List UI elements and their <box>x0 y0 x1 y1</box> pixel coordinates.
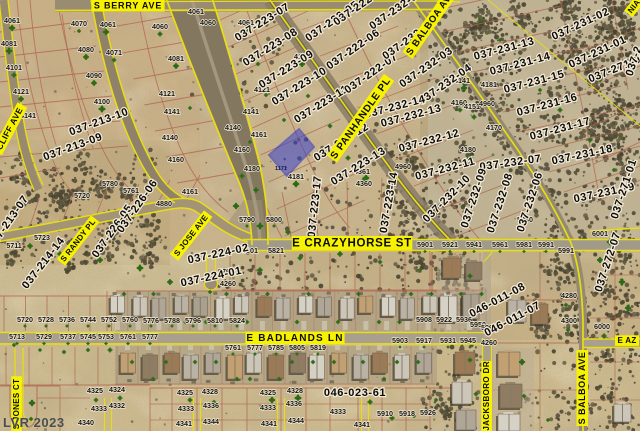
svg-text:4332: 4332 <box>109 401 125 410</box>
svg-text:S JACKSBORO DR: S JACKSBORO DR <box>482 361 491 431</box>
svg-text:5991: 5991 <box>558 246 574 255</box>
svg-text:4061: 4061 <box>188 7 204 16</box>
svg-text:4360: 4360 <box>356 179 372 188</box>
svg-text:5800: 5800 <box>266 215 282 224</box>
svg-text:5810: 5810 <box>207 316 223 325</box>
svg-text:4141: 4141 <box>164 107 180 116</box>
svg-text:5752: 5752 <box>101 315 117 324</box>
svg-text:S BALBOA AVE: S BALBOA AVE <box>577 352 587 425</box>
svg-text:4121: 4121 <box>13 87 29 96</box>
svg-text:4328: 4328 <box>202 387 218 396</box>
svg-text:5991: 5991 <box>538 240 554 249</box>
svg-text:4121: 4121 <box>159 89 175 98</box>
svg-text:5903: 5903 <box>392 336 408 345</box>
svg-text:5821: 5821 <box>268 246 284 255</box>
svg-text:4280: 4280 <box>561 291 577 300</box>
svg-text:5776: 5776 <box>143 316 159 325</box>
svg-text:4160: 4160 <box>234 145 250 154</box>
svg-text:4333: 4333 <box>178 404 194 413</box>
svg-text:5931: 5931 <box>440 336 456 345</box>
svg-text:5901: 5901 <box>417 240 433 249</box>
svg-text:5941: 5941 <box>466 240 482 249</box>
svg-text:4160: 4160 <box>168 155 184 164</box>
svg-text:4140: 4140 <box>225 123 241 132</box>
svg-text:4333: 4333 <box>330 407 346 416</box>
svg-text:4333: 4333 <box>91 404 107 413</box>
svg-text:4960: 4960 <box>395 162 411 171</box>
svg-text:4180: 4180 <box>244 164 260 173</box>
svg-text:1171: 1171 <box>275 166 287 172</box>
svg-text:4333: 4333 <box>260 403 276 412</box>
svg-text:4341: 4341 <box>261 419 277 428</box>
svg-text:4090: 4090 <box>86 71 102 80</box>
svg-text:4070: 4070 <box>71 19 87 28</box>
svg-text:4328: 4328 <box>287 386 303 395</box>
svg-text:5918: 5918 <box>399 409 415 418</box>
svg-text:LVR 2023: LVR 2023 <box>3 415 65 430</box>
svg-text:5796: 5796 <box>185 316 201 325</box>
svg-text:5805: 5805 <box>289 343 305 352</box>
svg-text:4336: 4336 <box>286 399 302 408</box>
svg-text:5910: 5910 <box>377 409 393 418</box>
svg-text:4081: 4081 <box>1 39 17 48</box>
svg-text:5720: 5720 <box>74 191 90 200</box>
svg-text:4341: 4341 <box>176 419 192 428</box>
svg-text:4260: 4260 <box>481 338 497 347</box>
svg-text:4325: 4325 <box>260 388 276 397</box>
svg-text:5945: 5945 <box>460 336 476 345</box>
svg-text:4300: 4300 <box>561 316 577 325</box>
svg-text:5926: 5926 <box>420 408 436 417</box>
svg-text:5788: 5788 <box>164 316 180 325</box>
svg-text:4344: 4344 <box>203 417 219 426</box>
svg-text:5761: 5761 <box>225 343 241 352</box>
svg-text:4081: 4081 <box>168 54 184 63</box>
svg-text:5824: 5824 <box>229 316 245 325</box>
svg-text:4151: 4151 <box>464 102 480 111</box>
svg-text:5745: 5745 <box>80 332 96 341</box>
svg-text:4180: 4180 <box>460 145 476 154</box>
svg-text:5728: 5728 <box>38 315 54 324</box>
svg-text:4061: 4061 <box>4 16 20 25</box>
svg-text:4324: 4324 <box>109 385 125 394</box>
svg-text:4100: 4100 <box>94 97 110 106</box>
svg-text:5777: 5777 <box>142 332 158 341</box>
svg-text:4060: 4060 <box>200 18 216 27</box>
svg-text:4344: 4344 <box>288 416 304 425</box>
svg-text:4341: 4341 <box>354 420 370 429</box>
svg-text:5761: 5761 <box>120 332 136 341</box>
svg-text:5961: 5961 <box>492 240 508 249</box>
svg-text:4101: 4101 <box>6 63 22 72</box>
svg-text:5760: 5760 <box>122 315 138 324</box>
svg-text:6000: 6000 <box>594 322 610 331</box>
svg-text:5922: 5922 <box>436 315 452 324</box>
svg-text:5981: 5981 <box>516 240 532 249</box>
svg-text:5819: 5819 <box>310 343 326 352</box>
svg-text:E BADLANDS LN: E BADLANDS LN <box>246 333 343 344</box>
svg-text:4061: 4061 <box>100 20 116 29</box>
svg-text:5777: 5777 <box>247 343 263 352</box>
svg-text:5785: 5785 <box>268 343 284 352</box>
svg-text:4060: 4060 <box>152 22 168 31</box>
svg-text:4071: 4071 <box>106 48 122 57</box>
svg-text:5729: 5729 <box>36 332 52 341</box>
svg-text:E CRAZYHORSE ST: E CRAZYHORSE ST <box>292 238 412 250</box>
svg-text:5713: 5713 <box>9 332 25 341</box>
svg-text:4170: 4170 <box>486 123 502 132</box>
svg-text:5761: 5761 <box>123 186 139 195</box>
svg-text:5921: 5921 <box>442 240 458 249</box>
svg-text:5780: 5780 <box>102 179 118 188</box>
svg-text:E AZ: E AZ <box>617 336 636 345</box>
svg-text:S BERRY AVE: S BERRY AVE <box>94 1 162 11</box>
svg-text:4140: 4140 <box>162 133 178 142</box>
svg-text:5753: 5753 <box>98 332 114 341</box>
svg-text:4880: 4880 <box>156 199 172 208</box>
svg-text:4960: 4960 <box>479 99 495 108</box>
svg-text:4325: 4325 <box>87 386 103 395</box>
svg-text:046-023-61: 046-023-61 <box>324 387 386 399</box>
svg-text:5720: 5720 <box>17 315 33 324</box>
svg-text:4080: 4080 <box>78 45 94 54</box>
svg-text:4161: 4161 <box>251 130 267 139</box>
svg-text:5736: 5736 <box>59 315 75 324</box>
svg-text:4340: 4340 <box>78 418 94 427</box>
svg-text:5744: 5744 <box>80 315 96 324</box>
svg-text:6001: 6001 <box>592 229 608 238</box>
svg-text:5790: 5790 <box>239 215 255 224</box>
svg-text:4181: 4181 <box>288 172 304 181</box>
svg-text:4141: 4141 <box>243 107 259 116</box>
svg-text:5737: 5737 <box>60 332 76 341</box>
svg-text:5723: 5723 <box>34 233 50 242</box>
svg-text:4161: 4161 <box>182 187 198 196</box>
svg-text:5917: 5917 <box>416 336 432 345</box>
svg-text:5711: 5711 <box>6 241 22 250</box>
svg-text:4181: 4181 <box>481 80 497 89</box>
svg-text:4336: 4336 <box>203 401 219 410</box>
svg-text:4325: 4325 <box>177 388 193 397</box>
svg-text:5908: 5908 <box>416 315 432 324</box>
